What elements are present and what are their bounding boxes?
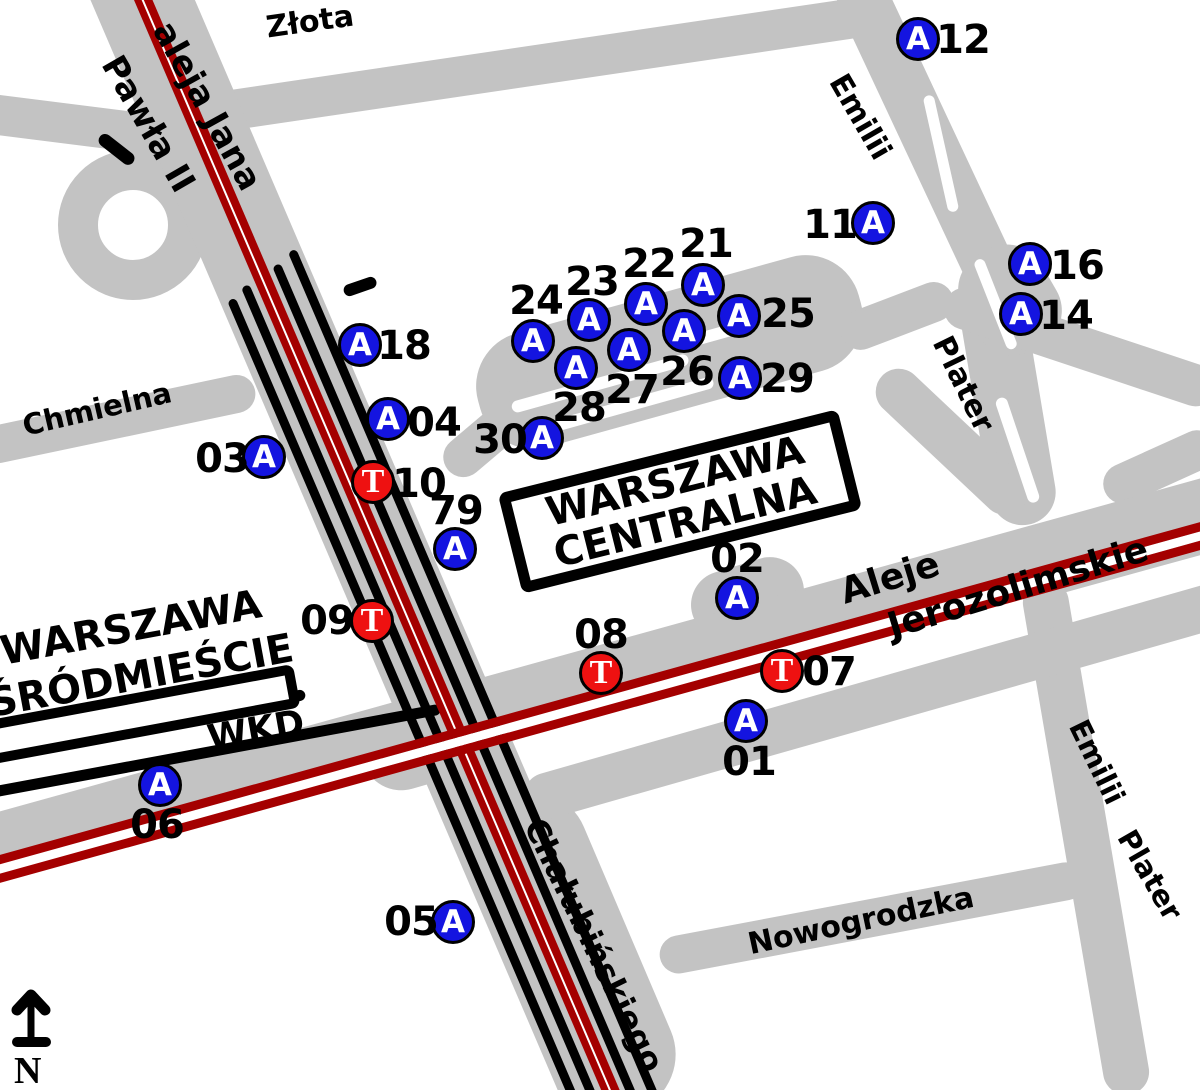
stop-number-22: 22 [622,241,676,287]
bus-stop-marker-29[interactable]: A [718,356,762,400]
bus-stop-marker-11[interactable]: A [851,201,895,245]
map-canvas: WARSZAWA CENTRALNA WARSZAWA ŚRÓDMIEŚCIE … [0,0,1200,1090]
stop-number-07: 07 [802,649,856,695]
street-label: Nowogrodzka [745,880,977,962]
stop-number-02: 02 [710,536,764,582]
tram-stop-marker-09[interactable]: T [350,599,394,643]
bus-stop-marker-14[interactable]: A [999,292,1043,336]
stop-number-24: 24 [509,278,563,324]
stop-number-03: 03 [195,436,249,482]
bus-stop-marker-25[interactable]: A [717,294,761,338]
bus-stop-marker-28[interactable]: A [554,346,598,390]
stop-number-05: 05 [384,899,438,945]
bus-stop-marker-24[interactable]: A [511,319,555,363]
stop-number-16: 16 [1050,243,1104,289]
bus-stop-marker-12[interactable]: A [896,17,940,61]
stop-number-08: 08 [574,612,628,658]
bus-stop-marker-27[interactable]: A [607,328,651,372]
stop-number-14: 14 [1039,293,1093,339]
stop-number-04: 04 [407,400,461,446]
stop-number-26: 26 [660,349,714,395]
bus-stop-marker-22[interactable]: A [624,282,668,326]
bus-stop-marker-26[interactable]: A [662,309,706,353]
stop-number-01: 01 [722,739,776,785]
stop-number-18: 18 [377,323,431,369]
bus-stop-marker-16[interactable]: A [1008,242,1052,286]
tram-stop-marker-10[interactable]: T [351,460,395,504]
stop-number-11: 11 [803,202,857,248]
stop-number-29: 29 [760,356,814,402]
north-arrow: N [8,985,68,1090]
stop-number-28: 28 [552,385,606,431]
north-label: N [14,1049,68,1090]
stop-number-09: 09 [300,598,354,644]
stop-number-10: 10 [392,461,446,507]
stop-number-27: 27 [605,367,659,413]
bus-stop-marker-02[interactable]: A [715,576,759,620]
street-label: Złota [264,0,356,45]
tram-stop-marker-07[interactable]: T [760,649,804,693]
bus-stop-marker-04[interactable]: A [366,397,410,441]
street-label: Plater [1111,824,1190,926]
stop-number-21: 21 [679,221,733,267]
stop-number-12: 12 [936,17,990,63]
bus-stop-marker-01[interactable]: A [724,699,768,743]
stop-number-23: 23 [565,259,619,305]
bus-stop-marker-21[interactable]: A [681,263,725,307]
bus-stop-marker-18[interactable]: A [338,323,382,367]
bus-stop-marker-06[interactable]: A [138,763,182,807]
stop-number-30: 30 [473,417,527,463]
stop-number-06: 06 [130,802,184,848]
stop-number-25: 25 [761,291,815,337]
